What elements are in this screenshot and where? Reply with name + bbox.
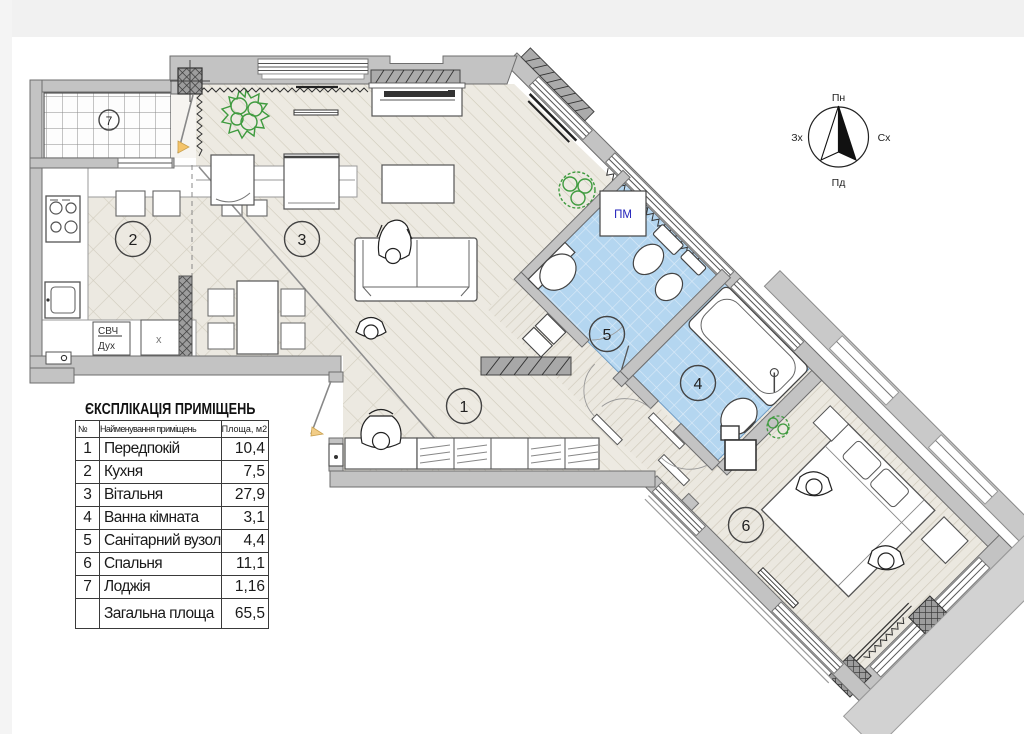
svg-text:Зх: Зх <box>791 132 803 144</box>
svg-text:4: 4 <box>694 376 703 393</box>
svg-text:Дух: Дух <box>98 341 115 352</box>
svg-text:СВЧ: СВЧ <box>98 326 118 337</box>
svg-text:2: 2 <box>129 232 138 249</box>
svg-text:Сх: Сх <box>878 132 892 144</box>
svg-text:7: 7 <box>106 114 113 128</box>
svg-text:Пд: Пд <box>832 177 846 189</box>
svg-text:3: 3 <box>298 232 307 249</box>
svg-text:6: 6 <box>742 518 751 535</box>
svg-text:1: 1 <box>460 399 469 416</box>
svg-text:х: х <box>156 334 162 346</box>
svg-text:5: 5 <box>603 327 612 344</box>
svg-text:Пн: Пн <box>832 92 846 104</box>
svg-text:ПМ: ПМ <box>614 209 632 221</box>
